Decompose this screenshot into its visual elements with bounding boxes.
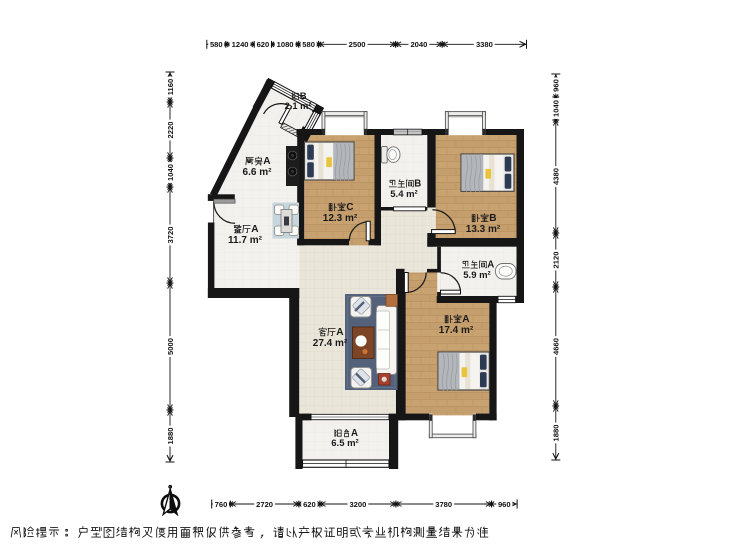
svg-text:2720: 2720 <box>256 500 273 509</box>
svg-text:3780: 3780 <box>435 500 452 509</box>
svg-text:2.1 m²: 2.1 m² <box>285 101 312 111</box>
svg-text:2500: 2500 <box>349 40 366 49</box>
svg-text:6.5 m²: 6.5 m² <box>331 438 358 449</box>
svg-text:A: A <box>462 314 470 325</box>
svg-text:4660: 4660 <box>552 338 561 355</box>
svg-text:C: C <box>346 202 354 213</box>
svg-text:1880: 1880 <box>552 425 561 442</box>
svg-text:27.4 m²: 27.4 m² <box>313 338 348 349</box>
svg-text:3380: 3380 <box>476 40 493 49</box>
svg-text:1240: 1240 <box>232 40 249 49</box>
svg-text:620: 620 <box>257 40 270 49</box>
svg-text:2120: 2120 <box>552 252 561 269</box>
svg-text:5.4 m²: 5.4 m² <box>390 189 417 200</box>
svg-text:A: A <box>263 156 271 167</box>
svg-text:B: B <box>489 213 496 224</box>
svg-text:580: 580 <box>210 40 223 49</box>
svg-text:3720: 3720 <box>166 227 175 244</box>
svg-text:960: 960 <box>498 500 511 509</box>
svg-text:960: 960 <box>552 79 561 92</box>
svg-text:13.3 m²: 13.3 m² <box>466 224 501 235</box>
svg-text:B: B <box>300 90 307 101</box>
svg-text:A: A <box>251 224 259 235</box>
svg-text:2220: 2220 <box>166 122 175 139</box>
svg-text:12.3 m²: 12.3 m² <box>323 213 358 224</box>
svg-text:A: A <box>336 327 344 338</box>
svg-text:1040: 1040 <box>166 164 175 181</box>
svg-text:4380: 4380 <box>552 168 561 185</box>
svg-text:580: 580 <box>302 40 315 49</box>
svg-text:1880: 1880 <box>166 428 175 445</box>
svg-text:760: 760 <box>215 500 228 509</box>
svg-text:2040: 2040 <box>410 40 427 49</box>
svg-text:6.6 m²: 6.6 m² <box>243 167 273 178</box>
svg-text:620: 620 <box>303 500 316 509</box>
svg-text:3200: 3200 <box>349 500 366 509</box>
svg-text:5.9 m²: 5.9 m² <box>463 270 490 281</box>
svg-text:1040: 1040 <box>552 100 561 117</box>
svg-text:11.7 m²: 11.7 m² <box>228 235 263 246</box>
svg-text:17.4 m²: 17.4 m² <box>439 325 474 336</box>
svg-text:1080: 1080 <box>277 40 294 49</box>
svg-text:5000: 5000 <box>166 338 175 355</box>
svg-text:1160: 1160 <box>166 79 175 95</box>
